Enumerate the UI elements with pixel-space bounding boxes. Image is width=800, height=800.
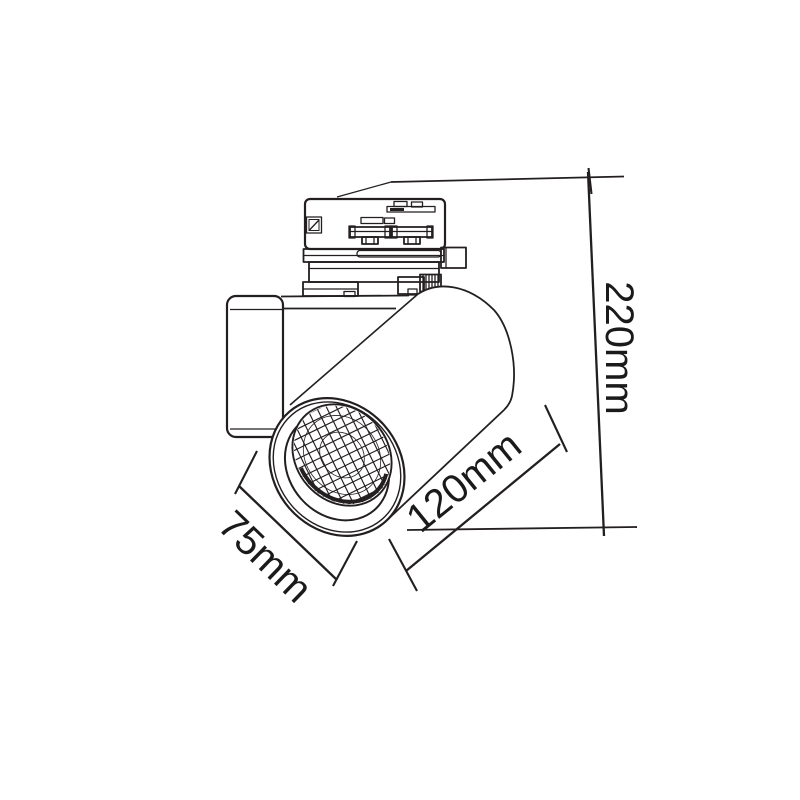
- adapter-contact-block-left: [349, 226, 391, 244]
- adapter-slot-detail: [361, 218, 383, 224]
- adapter-contact-slot: [394, 202, 407, 207]
- adapter-contact-block-right: [391, 226, 433, 244]
- dimension-tick: [333, 541, 357, 586]
- adapter-slide-tab: [390, 208, 404, 211]
- track-adapter: [303, 199, 466, 297]
- dimension-tick: [545, 405, 567, 452]
- dimension-tick: [235, 451, 257, 494]
- extension-line-top-diagonal: [337, 182, 391, 197]
- bracket-plate: [227, 296, 283, 437]
- adapter-slot-detail: [385, 218, 395, 224]
- technical-drawing: 220mm 120mm 75mm: [0, 0, 800, 800]
- dimension-label-height: 220mm: [597, 281, 641, 414]
